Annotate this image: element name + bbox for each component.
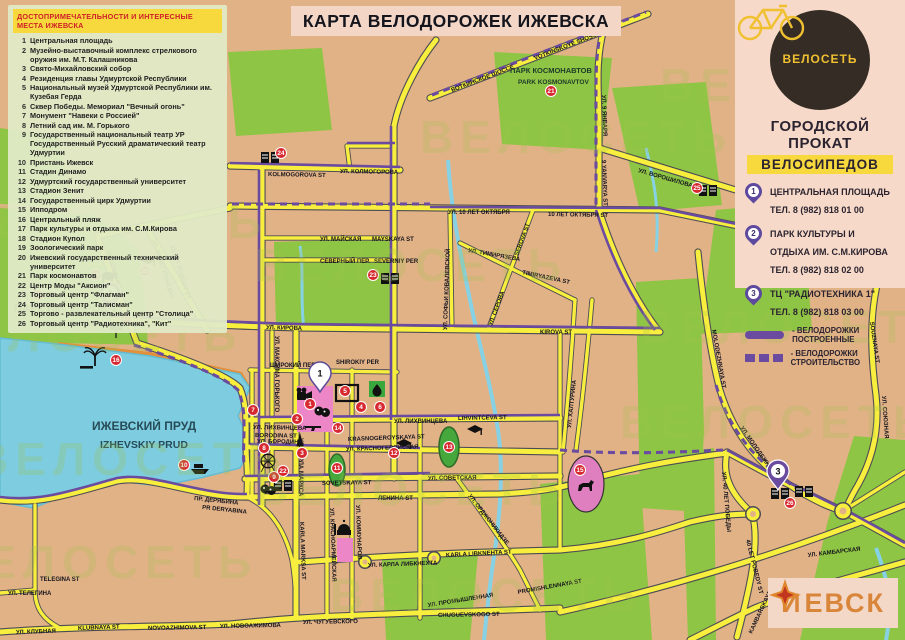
street-label: УЛ. КОЛМОГОРОВА — [340, 169, 399, 176]
svg-text:1: 1 — [308, 401, 312, 408]
street-label: УЛ. 10 ЛЕТ ОКТЯБРЯ — [448, 210, 510, 216]
attraction-number: 4 — [13, 74, 30, 83]
dashed-path-icon — [745, 354, 783, 362]
street-label: ШИРОКИЙ ПЕР. — [270, 361, 316, 369]
poi-marker: 4 — [356, 402, 367, 413]
attraction-number: 13 — [13, 186, 30, 195]
poi-marker: 6 — [375, 402, 386, 413]
attraction-number: 10 — [13, 158, 30, 167]
attraction-item: 1 Центральная площадь — [13, 36, 222, 45]
rental-point-phone: ТЕЛ. 8 (982) 818 03 00 — [770, 307, 864, 317]
attraction-number: 7 — [13, 111, 30, 120]
attraction-number: 14 — [13, 196, 30, 205]
poi-marker: 26 — [785, 498, 796, 509]
attraction-name: Монумент "Навеки с Россией" — [30, 111, 140, 120]
attraction-name: Торговый центр "Радиотехника", "Кит" — [30, 319, 171, 328]
attraction-number: 3 — [13, 64, 30, 73]
street-label: УЛ. СОЮЗНАЯ — [880, 396, 889, 439]
university-icon — [467, 425, 483, 435]
attraction-name: Резиденция главы Удмуртской Республики — [30, 74, 187, 83]
attraction-item: 7 Монумент "Навеки с Россией" — [13, 111, 222, 120]
solid-path-icon — [745, 331, 784, 339]
svg-text:8: 8 — [262, 445, 266, 452]
svg-text:25: 25 — [693, 185, 701, 192]
attraction-name: Торговый центр "Талисман" — [30, 300, 133, 309]
attraction-number: 11 — [13, 167, 30, 176]
svg-text:15: 15 — [576, 467, 584, 474]
poi-marker: 8 — [259, 443, 270, 454]
street-label: KLUBNAYA ST — [78, 625, 120, 632]
legend-construction-label: - ВЕЛОДОРОЖКИ СТРОИТЕЛЬСТВО — [791, 349, 895, 367]
beach-lounger-icon — [80, 366, 93, 369]
attraction-item: 21 Парк космонавтов — [13, 271, 222, 280]
attraction-number: 16 — [13, 215, 30, 224]
street-label: УЛ. СОВЕТСКАЯ — [428, 475, 477, 482]
velosset-logo: ВЕЛОСЕТЬ — [770, 10, 870, 110]
rental-point: 2 ПАРК КУЛЬТУРЫ И ОТДЫХА ИМ. С.М.КИРОВА … — [745, 224, 895, 278]
poi-marker: 14 — [333, 423, 344, 434]
attraction-item: 26 Торговый центр "Радиотехника", "Кит" — [13, 319, 222, 328]
street-label: SEVERNIY PER — [374, 259, 419, 265]
attractions-header: ДОСТОПРИМЕЧАТЕЛЬНОСТИ И ИНТЕРЕСНЫЕ МЕСТА… — [13, 9, 222, 33]
attraction-item: 18 Стадион Купол — [13, 234, 222, 243]
attraction-name: Зоологический парк — [30, 243, 103, 252]
park-kosmonavtov-label-en: PARK KOSMONAVTOV — [518, 79, 589, 86]
attraction-item: 2 Музейно-выставочный комплекс стрелково… — [13, 46, 222, 64]
attraction-name: Летний сад им. М. Горького — [30, 121, 130, 130]
attraction-item: 17 Парк культуры и отдыха им. С.М.Кирова — [13, 224, 222, 233]
attraction-number: 19 — [13, 243, 30, 252]
poi-marker: 5 — [340, 386, 351, 397]
poi-marker: 23 — [368, 270, 379, 281]
street-label: СЕВЕРНЫЙ ПЕР. — [320, 257, 370, 265]
attraction-number: 23 — [13, 290, 30, 299]
poi-marker: 2 — [292, 414, 303, 425]
street-label: SEROVA ST — [514, 222, 531, 256]
poi-marker: 3 — [297, 448, 308, 459]
street-label: SHIROKIY PER — [336, 360, 380, 366]
poi-marker: 10 — [179, 460, 190, 471]
street-label: MAYSKAYA ST — [372, 237, 414, 243]
svg-text:11: 11 — [334, 465, 341, 472]
svg-text:6: 6 — [378, 404, 382, 411]
attraction-item: 23 Торговый центр "Флагман" — [13, 290, 222, 299]
svg-text:12: 12 — [390, 450, 398, 457]
svg-text:24: 24 — [277, 150, 285, 157]
pond-label: ИЖЕВСКИЙ ПРУД — [92, 418, 197, 433]
street-label: УЛ. ЛИХВИНЦЕВА — [394, 419, 448, 425]
bicycle-icon — [735, 0, 807, 42]
rental-point-phone: ТЕЛ. 8 (982) 818 01 00 — [770, 205, 864, 215]
attractions-panel: ДОСТОПРИМЕЧАТЕЛЬНОСТИ И ИНТЕРЕСНЫЕ МЕСТА… — [8, 5, 227, 333]
poi-marker: 13 — [444, 442, 455, 453]
attraction-item: 5 Национальный музей Удмуртской Республи… — [13, 83, 222, 101]
svg-text:9: 9 — [272, 474, 276, 481]
street-label: УЛ. КИРОВА — [266, 325, 303, 332]
legend-built-label: - ВЕЛОДОРОЖКИ ПОСТРОЕННЫЕ — [792, 326, 895, 344]
street-label: KRASNOGEROYSKAYA ST — [348, 434, 425, 443]
svg-text:22: 22 — [279, 468, 287, 475]
attraction-name: Музейно-выставочный комплекс стрелкового… — [30, 46, 222, 64]
rental-point: 1 ЦЕНТРАЛЬНАЯ ПЛОЩАДЬ ТЕЛ. 8 (982) 818 0… — [745, 182, 895, 218]
attraction-number: 9 — [13, 130, 30, 157]
attraction-item: 19 Зоологический парк — [13, 243, 222, 252]
attraction-number: 6 — [13, 102, 30, 111]
attraction-name: Ипподром — [30, 205, 67, 214]
attraction-name: Пристань Ижевск — [30, 158, 93, 167]
attraction-number: 12 — [13, 177, 30, 186]
street-label: KOLMOGOROVA ST — [268, 172, 326, 179]
attraction-item: 9 Государственный национальный театр УР … — [13, 130, 222, 157]
mosque-block — [337, 538, 353, 562]
brand-tagline-2: ВЕЛОСИПЕДОВ — [747, 155, 893, 174]
attractions-list: 1 Центральная площадь 2 Музейно-выставоч… — [13, 36, 222, 328]
street-label: ЛЕНИНА ST — [378, 496, 413, 502]
bike-map-poster: KOLMOGOROVA ST УЛ. КОЛМОГОРОВА УЛ. 10 ЛЕ… — [0, 0, 905, 640]
attraction-item: 25 Торгово - развлекательный центр "Стол… — [13, 309, 222, 318]
poi-marker: 22 — [278, 466, 289, 477]
rental-point-phone: ТЕЛ. 8 (982) 818 02 00 — [770, 265, 864, 275]
attraction-item: 11 Стадин Динамо — [13, 167, 222, 176]
street-label: УЛ. ЛИХВИНЦЕВА — [253, 425, 307, 432]
street-label: CHUGUEVSKOGO ST — [438, 612, 500, 619]
svg-text:2: 2 — [295, 416, 299, 423]
street-label: УЛ. ОРДЖОНИКИДЗЕ — [466, 494, 509, 547]
attraction-item: 13 Стадион Зенит — [13, 186, 222, 195]
attraction-name: Государственный национальный театр УР Го… — [30, 130, 222, 157]
attraction-number: 21 — [13, 271, 30, 280]
izhevsk-logo: И ЕВСК — [768, 578, 898, 628]
attraction-name: Парк культуры и отдыха им. С.М.Кирова — [30, 224, 177, 233]
legend-construction-row: - ВЕЛОДОРОЖКИ СТРОИТЕЛЬСТВО — [745, 349, 895, 367]
attraction-name: Ижевский государственный технический уни… — [30, 253, 222, 271]
attraction-name: Торговый центр "Флагман" — [30, 290, 129, 299]
poi-marker: 21 — [546, 86, 557, 97]
svg-text:21: 21 — [547, 88, 555, 95]
street-label: УЛ. КЛУБНАЯ — [16, 629, 56, 636]
attraction-item: 4 Резиденция главы Удмуртской Республики — [13, 74, 222, 83]
rental-point-name: ПАРК КУЛЬТУРЫ И ОТДЫХА ИМ. С.М.КИРОВА — [770, 229, 888, 257]
svg-text:10: 10 — [180, 462, 188, 469]
svg-text:3: 3 — [300, 450, 304, 457]
street-label: SOVETSKAYA ST — [322, 480, 372, 487]
svg-text:1: 1 — [317, 369, 322, 379]
attraction-number: 24 — [13, 300, 30, 309]
poi-marker: 16 — [111, 355, 122, 366]
attraction-number: 8 — [13, 121, 30, 130]
attraction-item: 8 Летний сад им. М. Горького — [13, 121, 222, 130]
svg-text:13: 13 — [445, 444, 453, 451]
poi-marker: 11 — [332, 463, 343, 474]
street-label: NOVOAZHIMOVA ST — [148, 625, 207, 632]
street-label: УЛ. СЕРОВА — [488, 290, 506, 327]
attraction-number: 20 — [13, 253, 30, 271]
attraction-name: Государственный цирк Удмуртии — [30, 196, 151, 205]
attraction-name: Национальный музей Удмуртской Республики… — [30, 83, 222, 101]
attraction-name: Стадион Купол — [30, 234, 85, 243]
poi-marker: 25 — [692, 183, 703, 194]
svg-text:4: 4 — [359, 404, 363, 411]
attraction-name: Центр Моды "Аксион" — [30, 281, 110, 290]
mosque-icon — [334, 520, 351, 535]
attraction-item: 24 Торговый центр "Талисман" — [13, 300, 222, 309]
svg-text:7: 7 — [251, 407, 255, 414]
attraction-name: Стадин Динамо — [30, 167, 86, 176]
attraction-name: Удмуртский государственный университет — [30, 177, 186, 186]
rental-point: 3 ТЦ "РАДИОТЕХНИКА 1" ТЕЛ. 8 (982) 818 0… — [745, 284, 895, 320]
street-label: УЛ. ЧУГУЕВСКОГО — [303, 619, 358, 626]
street-label: 10 ЛЕТ ОКТЯБРЯ ST — [548, 212, 609, 219]
attraction-name: Сквер Победы. Мемориал "Вечный огонь" — [30, 102, 185, 111]
poi-marker: 15 — [575, 465, 586, 476]
udmurt-star-icon — [768, 578, 802, 612]
attraction-item: 10 Пристань Ижевск — [13, 158, 222, 167]
attraction-name: Стадион Зенит — [30, 186, 84, 195]
attraction-number: 1 — [13, 36, 30, 45]
attraction-name: Центральная площадь — [30, 36, 113, 45]
attraction-item: 14 Государственный цирк Удмуртии — [13, 196, 222, 205]
brand-panel: ВЕЛОСЕТЬ ГОРОДСКОЙ ПРОКАТ ВЕЛОСИПЕДОВ 1 … — [735, 0, 905, 288]
svg-text:26: 26 — [786, 500, 794, 507]
svg-text:16: 16 — [112, 357, 120, 364]
attraction-item: 3 Свято-Михайловский собор — [13, 64, 222, 73]
street-label: УЛ. МАКСИМА ГОРЬКОГО — [273, 336, 279, 413]
page-title: КАРТА ВЕЛОДОРОЖЕК ИЖЕВСКА — [291, 6, 621, 36]
attraction-number: 25 — [13, 309, 30, 318]
street-label: УЛ. ТЕЛЕГИНА — [8, 591, 52, 597]
poi-marker: 7 — [248, 405, 259, 416]
street-label: УЛ. КОММУНАРОВ — [354, 505, 362, 561]
mall-icon — [771, 488, 789, 499]
attraction-item: 6 Сквер Победы. Мемориал "Вечный огонь" — [13, 102, 222, 111]
attraction-number: 15 — [13, 205, 30, 214]
attraction-item: 20 Ижевский государственный технический … — [13, 253, 222, 271]
attraction-item: 22 Центр Моды "Аксион" — [13, 281, 222, 290]
attraction-name: Свято-Михайловский собор — [30, 64, 131, 73]
pin-icon: 1 — [741, 179, 765, 203]
street-label: LIHVINTCEVA ST — [458, 415, 507, 422]
street-label: TELEGINA ST — [40, 577, 80, 583]
rental-point-name: ЦЕНТРАЛЬНАЯ ПЛОЩАДЬ — [770, 187, 890, 197]
poi-marker: 12 — [389, 448, 400, 459]
street-label: УЛ. КАРЛА МАРКСА — [297, 438, 303, 497]
pond-label-en: IZHEVSKIY PRUD — [100, 439, 188, 451]
attraction-number: 18 — [13, 234, 30, 243]
pin-icon: 3 — [741, 281, 765, 305]
attraction-item: 12 Удмуртский государственный университе… — [13, 177, 222, 186]
attraction-name: Торгово - развлекательный центр "Столица… — [30, 309, 193, 318]
attraction-name: Парк космонавтов — [30, 271, 96, 280]
pin-icon: 2 — [741, 221, 765, 245]
svg-text:14: 14 — [334, 425, 342, 432]
street-label: УЛ. МАЙСКАЯ — [320, 235, 361, 243]
street-label: KIROVA ST — [540, 330, 572, 336]
attraction-item: 16 Центральный пляж — [13, 215, 222, 224]
park-kosmonavtov-label: ПАРК КОСМОНАВТОВ — [510, 66, 592, 75]
street-label: УЛ. НОВОАЖИМОВА — [220, 623, 282, 630]
attraction-number: 26 — [13, 319, 30, 328]
poi-marker: 1 — [305, 399, 316, 410]
attraction-item: 15 Ипподром — [13, 205, 222, 214]
street-label: PR DERYABINA — [202, 505, 248, 516]
brand-tagline: ГОРОДСКОЙ ПРОКАТ — [745, 118, 895, 152]
svg-text:3: 3 — [775, 467, 780, 477]
svg-text:5: 5 — [343, 388, 347, 395]
attraction-number: 17 — [13, 224, 30, 233]
attraction-name: Центральный пляж — [30, 215, 101, 224]
svg-text:23: 23 — [369, 272, 377, 279]
attraction-number: 22 — [13, 281, 30, 290]
attraction-number: 5 — [13, 83, 30, 101]
attraction-number: 2 — [13, 46, 30, 64]
brand-name: ВЕЛОСЕТЬ — [782, 52, 857, 66]
izhevsk-logo-suffix: ЕВСК — [804, 588, 884, 619]
legend-built-row: - ВЕЛОДОРОЖКИ ПОСТРОЕННЫЕ — [745, 326, 895, 344]
rental-point-name: ТЦ "РАДИОТЕХНИКА 1" — [770, 289, 875, 299]
rental-points-list: 1 ЦЕНТРАЛЬНАЯ ПЛОЩАДЬ ТЕЛ. 8 (982) 818 0… — [745, 182, 895, 320]
poi-marker: 24 — [276, 148, 287, 159]
